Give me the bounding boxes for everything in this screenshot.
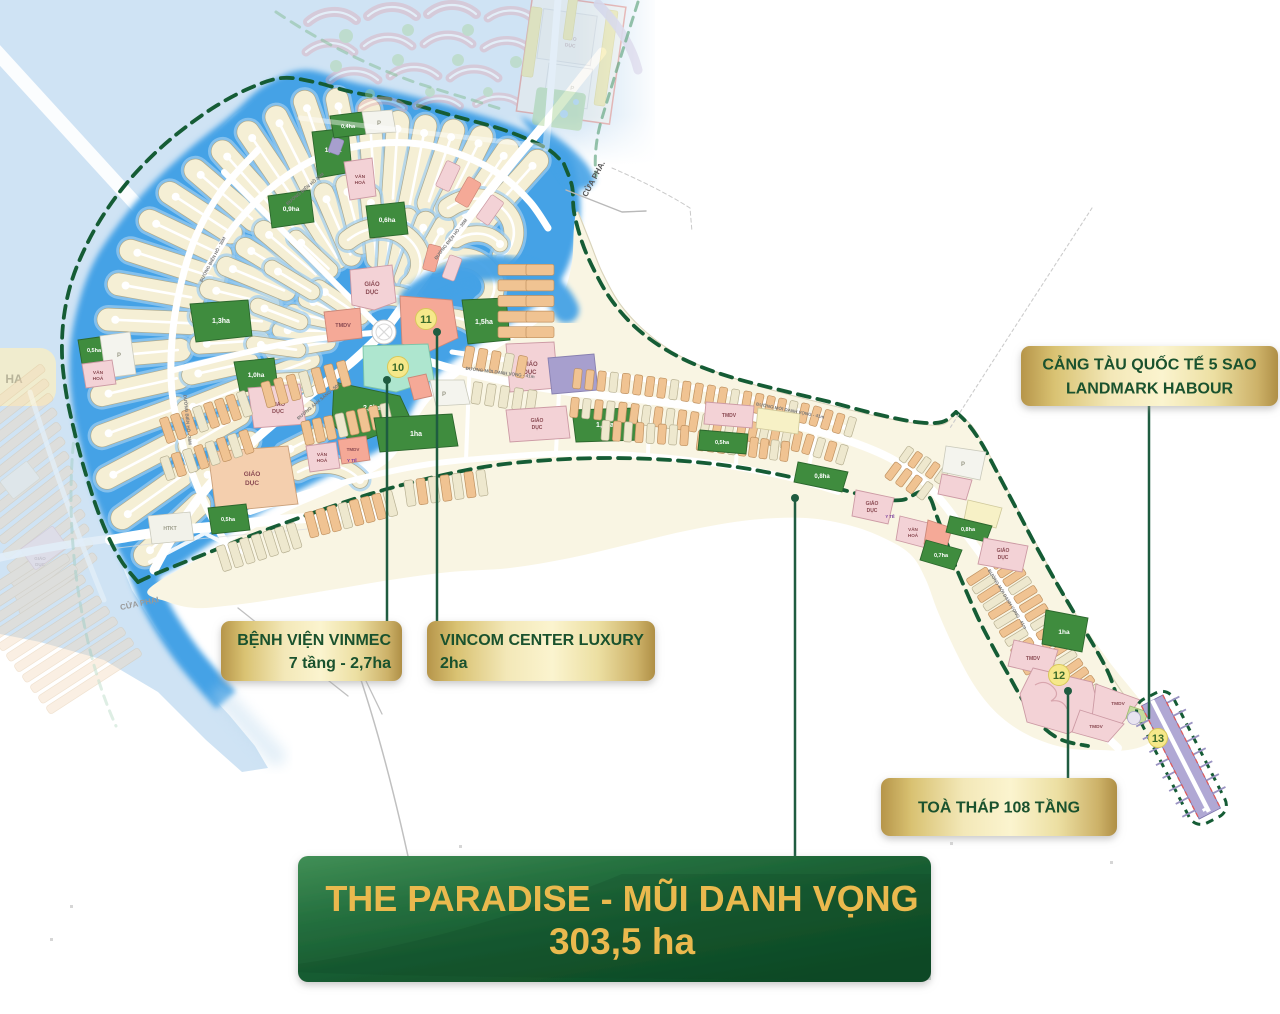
- svg-text:TMDV: TMDV: [347, 447, 360, 452]
- svg-text:11: 11: [420, 314, 432, 326]
- svg-text:DỤC: DỤC: [245, 480, 259, 487]
- svg-text:LANDMARK HABOUR: LANDMARK HABOUR: [1066, 381, 1234, 398]
- svg-text:DỤC: DỤC: [998, 555, 1009, 561]
- svg-text:1ha: 1ha: [1058, 629, 1070, 636]
- svg-text:DỤC: DỤC: [35, 562, 45, 567]
- svg-text:0,5ha: 0,5ha: [87, 348, 102, 354]
- svg-text:VĂN: VĂN: [355, 173, 366, 180]
- svg-text:DỤC: DỤC: [272, 409, 284, 415]
- svg-text:VĂN: VĂN: [317, 451, 328, 458]
- svg-text:DỤC: DỤC: [867, 508, 878, 514]
- svg-text:0,5ha: 0,5ha: [715, 440, 730, 446]
- svg-text:0,8ha: 0,8ha: [961, 527, 976, 533]
- svg-text:Y TẾ: Y TẾ: [347, 457, 357, 463]
- svg-text:HOÁ: HOÁ: [908, 532, 919, 538]
- svg-text:THE PARADISE - MŨI DANH VỌNG: THE PARADISE - MŨI DANH VỌNG: [325, 877, 918, 919]
- svg-text:HOÁ: HOÁ: [93, 375, 104, 382]
- svg-text:HOÁ: HOÁ: [317, 457, 328, 464]
- svg-text:GIÁO: GIÁO: [34, 555, 46, 561]
- svg-text:P: P: [961, 462, 965, 468]
- svg-text:TOÀ THÁP 108 TẦNG: TOÀ THÁP 108 TẦNG: [918, 798, 1080, 817]
- svg-text:CẢNG TÀU QUỐC TẾ 5 SAO: CẢNG TÀU QUỐC TẾ 5 SAO: [1042, 354, 1256, 374]
- svg-text:10: 10: [392, 362, 404, 374]
- svg-text:P: P: [570, 86, 575, 93]
- svg-text:P: P: [442, 392, 446, 398]
- svg-text:7 tầng - 2,7ha: 7 tầng - 2,7ha: [289, 655, 391, 672]
- svg-text:12: 12: [1053, 670, 1065, 682]
- svg-text:GIÁO: GIÁO: [244, 469, 261, 478]
- svg-text:13: 13: [1152, 733, 1164, 745]
- svg-text:1,0ha: 1,0ha: [248, 372, 265, 379]
- svg-text:GIÁO: GIÁO: [866, 500, 879, 507]
- svg-text:TMDV: TMDV: [335, 323, 351, 329]
- svg-text:0,9ha: 0,9ha: [283, 206, 300, 213]
- svg-text:BỆNH VIỆN VINMEC: BỆNH VIỆN VINMEC: [237, 630, 391, 649]
- svg-text:VINCOM CENTER LUXURY: VINCOM CENTER LUXURY: [440, 632, 644, 649]
- svg-text:GIÁO: GIÁO: [364, 281, 380, 288]
- svg-text:1ha: 1ha: [410, 431, 422, 438]
- svg-text:TMDV: TMDV: [1111, 701, 1125, 707]
- svg-text:TMDV: TMDV: [1026, 656, 1041, 662]
- svg-text:P: P: [117, 353, 121, 359]
- svg-text:VĂN: VĂN: [908, 526, 918, 532]
- svg-text:TMDV: TMDV: [722, 413, 737, 419]
- svg-text:VĂN: VĂN: [93, 369, 104, 376]
- svg-text:HOÁ: HOÁ: [355, 179, 366, 186]
- svg-text:Y TẾ: Y TẾ: [885, 514, 894, 519]
- svg-text:DỤC: DỤC: [366, 290, 380, 296]
- svg-text:0,5ha: 0,5ha: [221, 517, 236, 523]
- svg-text:0,7ha: 0,7ha: [934, 553, 949, 559]
- svg-text:1,5ha: 1,5ha: [475, 319, 493, 326]
- svg-text:GIÁO: GIÁO: [531, 417, 544, 424]
- svg-text:2ha: 2ha: [440, 655, 468, 672]
- svg-text:TMDV: TMDV: [1089, 724, 1103, 730]
- svg-text:GIÁO: GIÁO: [997, 547, 1010, 554]
- svg-text:303,5 ha: 303,5 ha: [549, 921, 695, 962]
- svg-text:DỤC: DỤC: [532, 425, 543, 431]
- svg-text:HTKT: HTKT: [163, 526, 176, 532]
- svg-text:0,6ha: 0,6ha: [379, 217, 396, 224]
- svg-text:1,3ha: 1,3ha: [212, 318, 230, 325]
- svg-text:0,8ha: 0,8ha: [814, 474, 830, 480]
